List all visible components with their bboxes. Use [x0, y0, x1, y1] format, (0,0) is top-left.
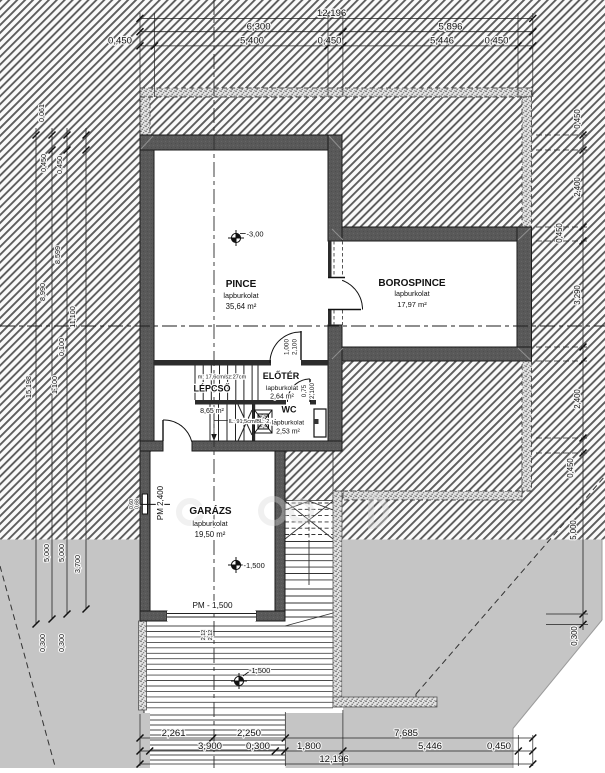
svg-text:0,300: 0,300: [246, 741, 270, 752]
svg-text:0,68: 0,68: [135, 499, 141, 509]
svg-text:GARÁZS: GARÁZS: [189, 504, 232, 517]
svg-text:lapburkolat: lapburkolat: [272, 420, 304, 427]
svg-text:8,990: 8,990: [38, 283, 47, 301]
svg-text:5,896: 5,896: [438, 22, 462, 33]
svg-text:15,198: 15,198: [24, 376, 33, 398]
svg-text:m: 17,6cm/sz:27cm: m: 17,6cm/sz:27cm: [198, 375, 247, 381]
svg-text:12,196: 12,196: [317, 8, 346, 19]
svg-text:2,400: 2,400: [573, 177, 582, 197]
svg-text:2,100: 2,100: [292, 339, 299, 355]
svg-text:5,000: 5,000: [42, 544, 51, 562]
svg-text:LÉPCSŐ: LÉPCSŐ: [193, 383, 230, 394]
svg-text:lapburkolat: lapburkolat: [223, 291, 258, 300]
svg-text:2,261: 2,261: [162, 728, 186, 739]
svg-text:lapburkolat: lapburkolat: [192, 519, 227, 528]
svg-text:7,685: 7,685: [394, 728, 418, 739]
svg-text:3,700: 3,700: [73, 555, 82, 573]
svg-text:0,061: 0,061: [37, 104, 46, 122]
svg-text:0,300: 0,300: [38, 634, 47, 652]
svg-text:2,53 m²: 2,53 m²: [276, 429, 300, 436]
svg-text:BOROSPINCE: BOROSPINCE: [378, 278, 446, 289]
svg-text:2,250: 2,250: [237, 728, 261, 739]
svg-text:2,64 m²: 2,64 m²: [270, 394, 294, 401]
svg-text:3,900: 3,900: [198, 741, 222, 752]
svg-text:0,75: 0,75: [301, 384, 308, 397]
svg-text:8,599: 8,599: [53, 246, 62, 264]
svg-text:8,65 m²: 8,65 m²: [200, 408, 224, 415]
svg-text:0,450: 0,450: [55, 156, 64, 174]
svg-text:6,300: 6,300: [247, 22, 271, 33]
svg-text:5,446: 5,446: [418, 741, 442, 752]
svg-text:0,450: 0,450: [317, 36, 341, 47]
svg-text:lapburkolat: lapburkolat: [266, 385, 298, 392]
svg-text:5,400: 5,400: [240, 36, 264, 47]
svg-text:0,450: 0,450: [555, 223, 564, 243]
svg-text:0,450: 0,450: [108, 36, 132, 47]
svg-text:-3,00: -3,00: [247, 230, 264, 239]
svg-text:WC: WC: [282, 405, 297, 415]
svg-text:0,450: 0,450: [566, 458, 575, 478]
svg-text:-1,500: -1,500: [249, 666, 270, 675]
svg-text:PM 2,400: PM 2,400: [156, 485, 165, 520]
svg-text:2,12: 2,12: [201, 630, 207, 641]
svg-text:11,100: 11,100: [68, 306, 77, 327]
svg-text:3,290: 3,290: [573, 285, 582, 305]
svg-text:35,64 m²: 35,64 m²: [226, 302, 257, 311]
svg-text:5,446: 5,446: [430, 36, 454, 47]
svg-text:0,450: 0,450: [484, 36, 508, 47]
svg-text:1,100: 1,100: [50, 376, 59, 394]
svg-text:0,450: 0,450: [573, 109, 582, 129]
svg-text:0,100: 0,100: [57, 338, 66, 356]
svg-text:PINCE: PINCE: [226, 279, 257, 290]
svg-text:12,196: 12,196: [319, 754, 348, 765]
svg-text:0,450: 0,450: [487, 741, 511, 752]
svg-text:2,100: 2,100: [309, 383, 316, 399]
svg-text:1,000: 1,000: [284, 339, 291, 355]
svg-text:19,50 m²: 19,50 m²: [195, 530, 226, 539]
svg-text:5,000: 5,000: [57, 544, 66, 562]
svg-text:0,300: 0,300: [570, 626, 579, 646]
svg-text:5,000: 5,000: [569, 520, 578, 540]
svg-text:0,300: 0,300: [57, 634, 66, 652]
svg-text:2,400: 2,400: [573, 389, 582, 409]
svg-text:-1,500: -1,500: [244, 561, 265, 570]
svg-text:17,97 m²: 17,97 m²: [397, 300, 427, 309]
svg-text:2,12: 2,12: [208, 630, 214, 641]
svg-text:0,450: 0,450: [39, 154, 48, 172]
svg-text:lapburkolat: lapburkolat: [394, 289, 429, 298]
svg-text:ELŐTÉR: ELŐTÉR: [263, 370, 300, 381]
svg-text:PM - 1,500: PM - 1,500: [192, 601, 232, 610]
svg-text:1,800: 1,800: [297, 741, 321, 752]
